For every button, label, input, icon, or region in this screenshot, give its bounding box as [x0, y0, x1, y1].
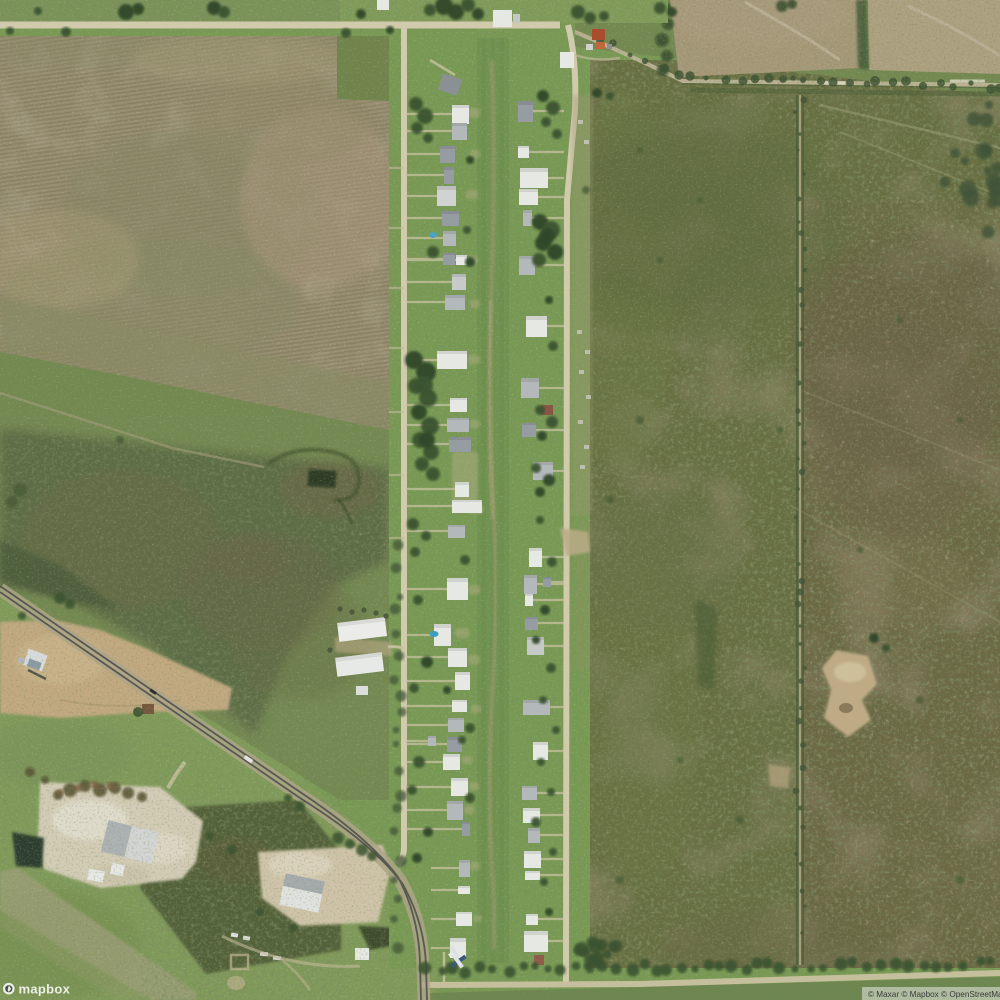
svg-text:mapbox: mapbox [19, 982, 71, 997]
svg-text:© Maxar © Mapbox © OpenStreetM: © Maxar © Mapbox © OpenStreetMap [868, 990, 1000, 999]
